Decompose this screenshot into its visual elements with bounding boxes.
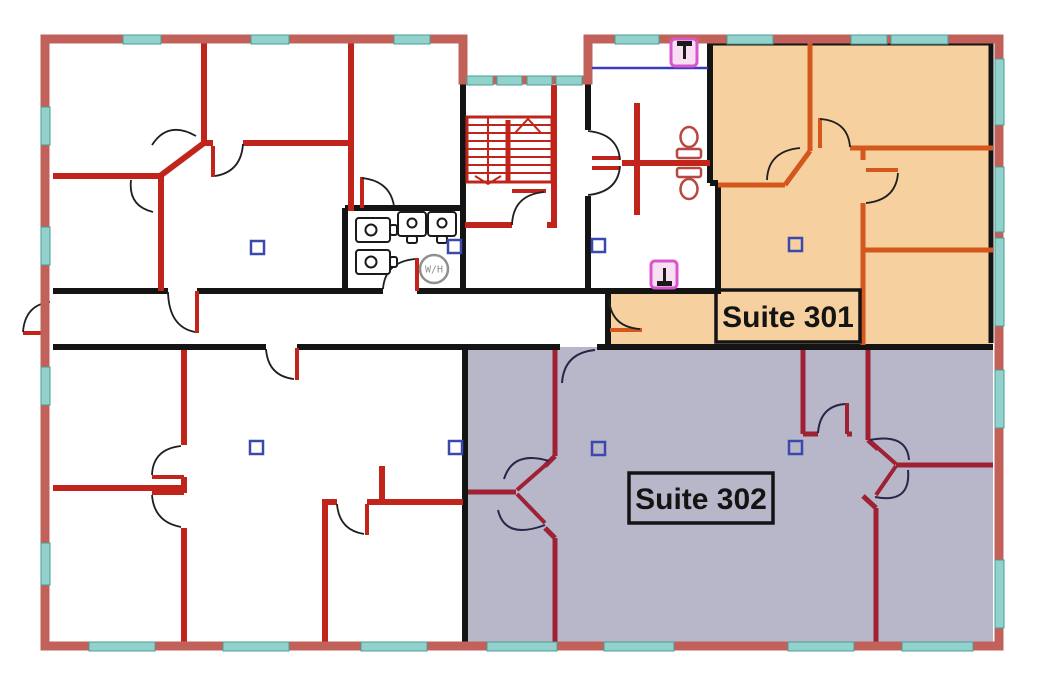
window-segment	[902, 642, 973, 651]
window-segment	[604, 642, 674, 651]
window-segment	[615, 35, 659, 44]
water-heater-icon: W/H	[420, 255, 448, 283]
window-segment	[995, 167, 1004, 232]
sink-marker-icon	[671, 39, 697, 66]
window-segment	[251, 35, 289, 44]
window-segment	[995, 370, 1004, 428]
window-segment	[995, 238, 1004, 326]
toilet-icon	[356, 218, 397, 242]
window-segment	[467, 76, 493, 85]
window-segment	[727, 35, 773, 44]
window-segment	[123, 35, 161, 44]
window-segment	[361, 642, 427, 651]
window-segment	[556, 76, 582, 85]
water-heater-label: W/H	[425, 265, 443, 276]
window-segment	[41, 227, 50, 265]
toilet-icon	[356, 250, 397, 274]
window-segment	[89, 642, 155, 651]
window-segment	[41, 543, 50, 585]
window-segment	[394, 35, 430, 44]
window-segment	[851, 35, 887, 44]
window-segment	[788, 642, 854, 651]
window-segment	[41, 107, 50, 145]
window-segment	[891, 35, 948, 44]
floor-plan-page: W/H Suite 301 Suite 302	[0, 0, 1043, 696]
window-segment	[487, 642, 557, 651]
suite-301-label-text: Suite 301	[722, 301, 854, 334]
sink-marker-icon	[651, 261, 677, 288]
window-segment	[497, 76, 522, 85]
window-segment	[527, 76, 552, 85]
window-segment	[995, 59, 1004, 125]
suite-302-label-text: Suite 302	[635, 483, 767, 516]
window-segment	[223, 642, 289, 651]
window-segment	[995, 560, 1004, 628]
floor-plan-canvas: W/H Suite 301 Suite 302	[0, 0, 1043, 696]
window-segment	[41, 367, 50, 405]
